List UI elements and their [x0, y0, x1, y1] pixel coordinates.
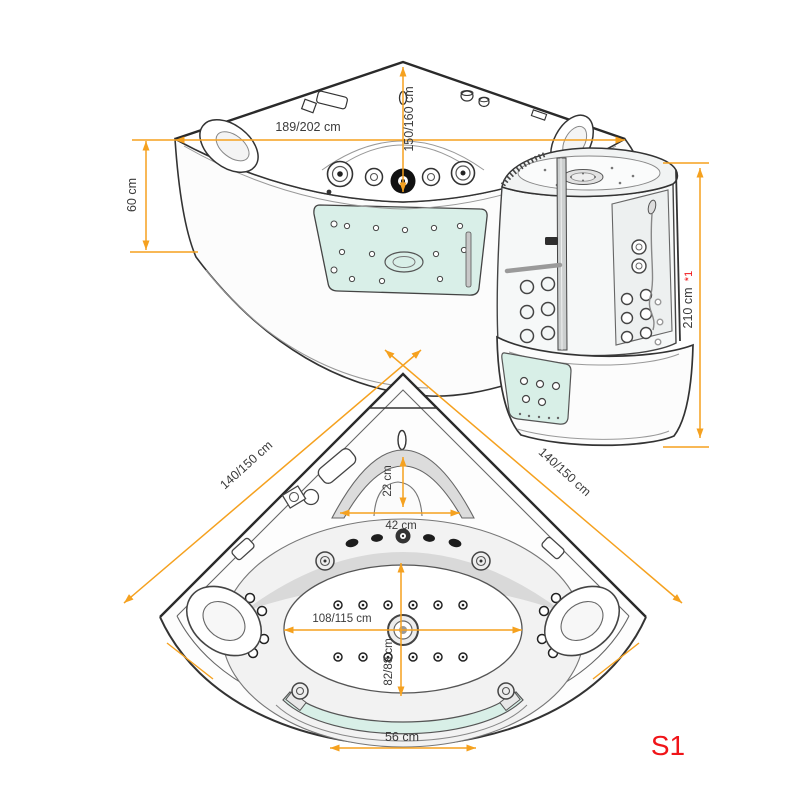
dim-label-headrest-depth: 22 cm — [382, 465, 394, 496]
dim-label-side-right: 140/150 cm — [536, 445, 594, 499]
dim-label-cabin-height: 210 cm — [681, 288, 695, 329]
model-code: S1 — [651, 730, 685, 761]
dim-label-height: 60 cm — [125, 178, 139, 212]
base-glass-window — [502, 353, 571, 424]
window-handle — [466, 232, 471, 287]
dim-label-width: 189/202 cm — [275, 120, 340, 134]
shower-cabin-view — [497, 148, 693, 445]
rain-shower-head — [563, 170, 603, 185]
front-glass-window — [314, 205, 487, 295]
technical-drawing-page: 189/202 cm 150/160 cm 60 cm 210 cm *1 14… — [0, 0, 800, 800]
corner-fitting — [398, 431, 406, 450]
dim-label-inner-depth: 82/88 cm — [383, 638, 395, 685]
cabin-footnote: *1 — [683, 271, 695, 281]
corner-bathtub-technical-drawing: 189/202 cm 150/160 cm 60 cm 210 cm *1 14… — [0, 0, 800, 800]
dim-label-depth: 150/160 cm — [402, 86, 416, 151]
dim-label-side-left: 140/150 cm — [217, 438, 275, 492]
dim-label-inner-width: 108/115 cm — [312, 613, 371, 625]
control-display — [545, 237, 558, 245]
dim-label-headrest-width: 42 cm — [385, 520, 416, 532]
dim-label-glass-width: 56 cm — [385, 730, 419, 744]
plan-accessory-knob — [304, 490, 319, 505]
